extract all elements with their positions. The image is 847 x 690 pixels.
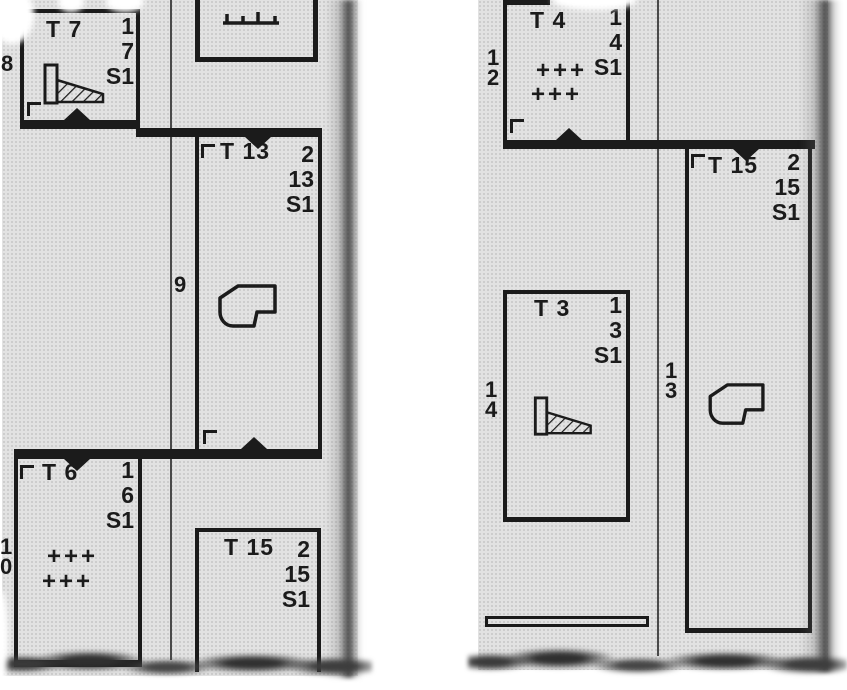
torn-edges bbox=[0, 0, 847, 685]
torn-white-notch bbox=[552, 0, 637, 10]
torn-white-notch bbox=[58, 0, 84, 12]
torn-edge-bottom-right-fragment bbox=[468, 640, 847, 684]
torn-edge-right-left-fragment bbox=[326, 0, 368, 678]
torn-edge-bottom-left-fragment bbox=[0, 644, 372, 684]
torn-white-notch bbox=[106, 0, 144, 12]
torn-edge-right-right-fragment bbox=[800, 0, 847, 672]
torn-white-notch bbox=[0, 0, 34, 44]
scanned-floorplan-page: { "diagram": { "left_fragment": { "aisle… bbox=[0, 0, 847, 685]
